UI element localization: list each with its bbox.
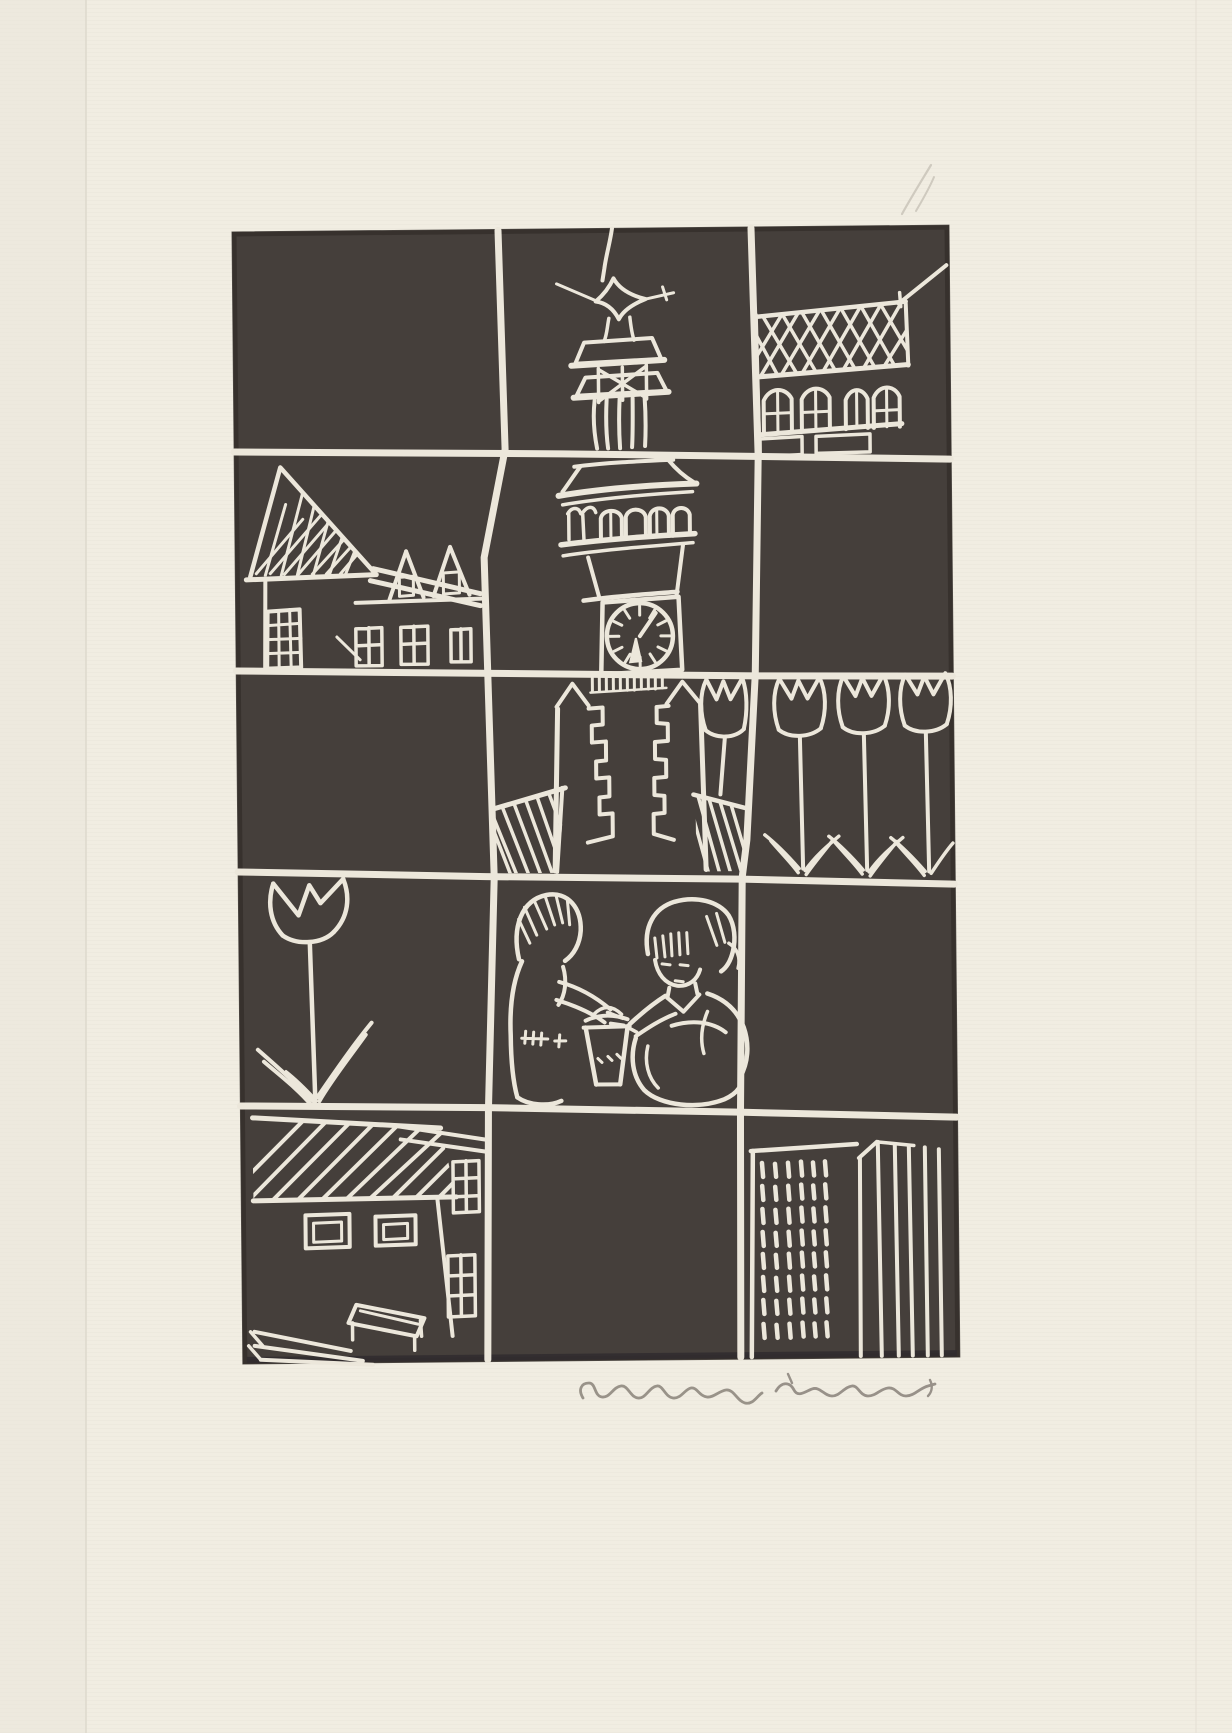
print-block bbox=[211, 225, 960, 1366]
artist-signature bbox=[581, 1374, 935, 1403]
pencil-marks-top-right bbox=[902, 165, 934, 214]
scanned-artwork-page: { "artwork": { "title": "Linocut print: … bbox=[0, 0, 1232, 1733]
linocut-print-scan bbox=[0, 0, 1232, 1733]
